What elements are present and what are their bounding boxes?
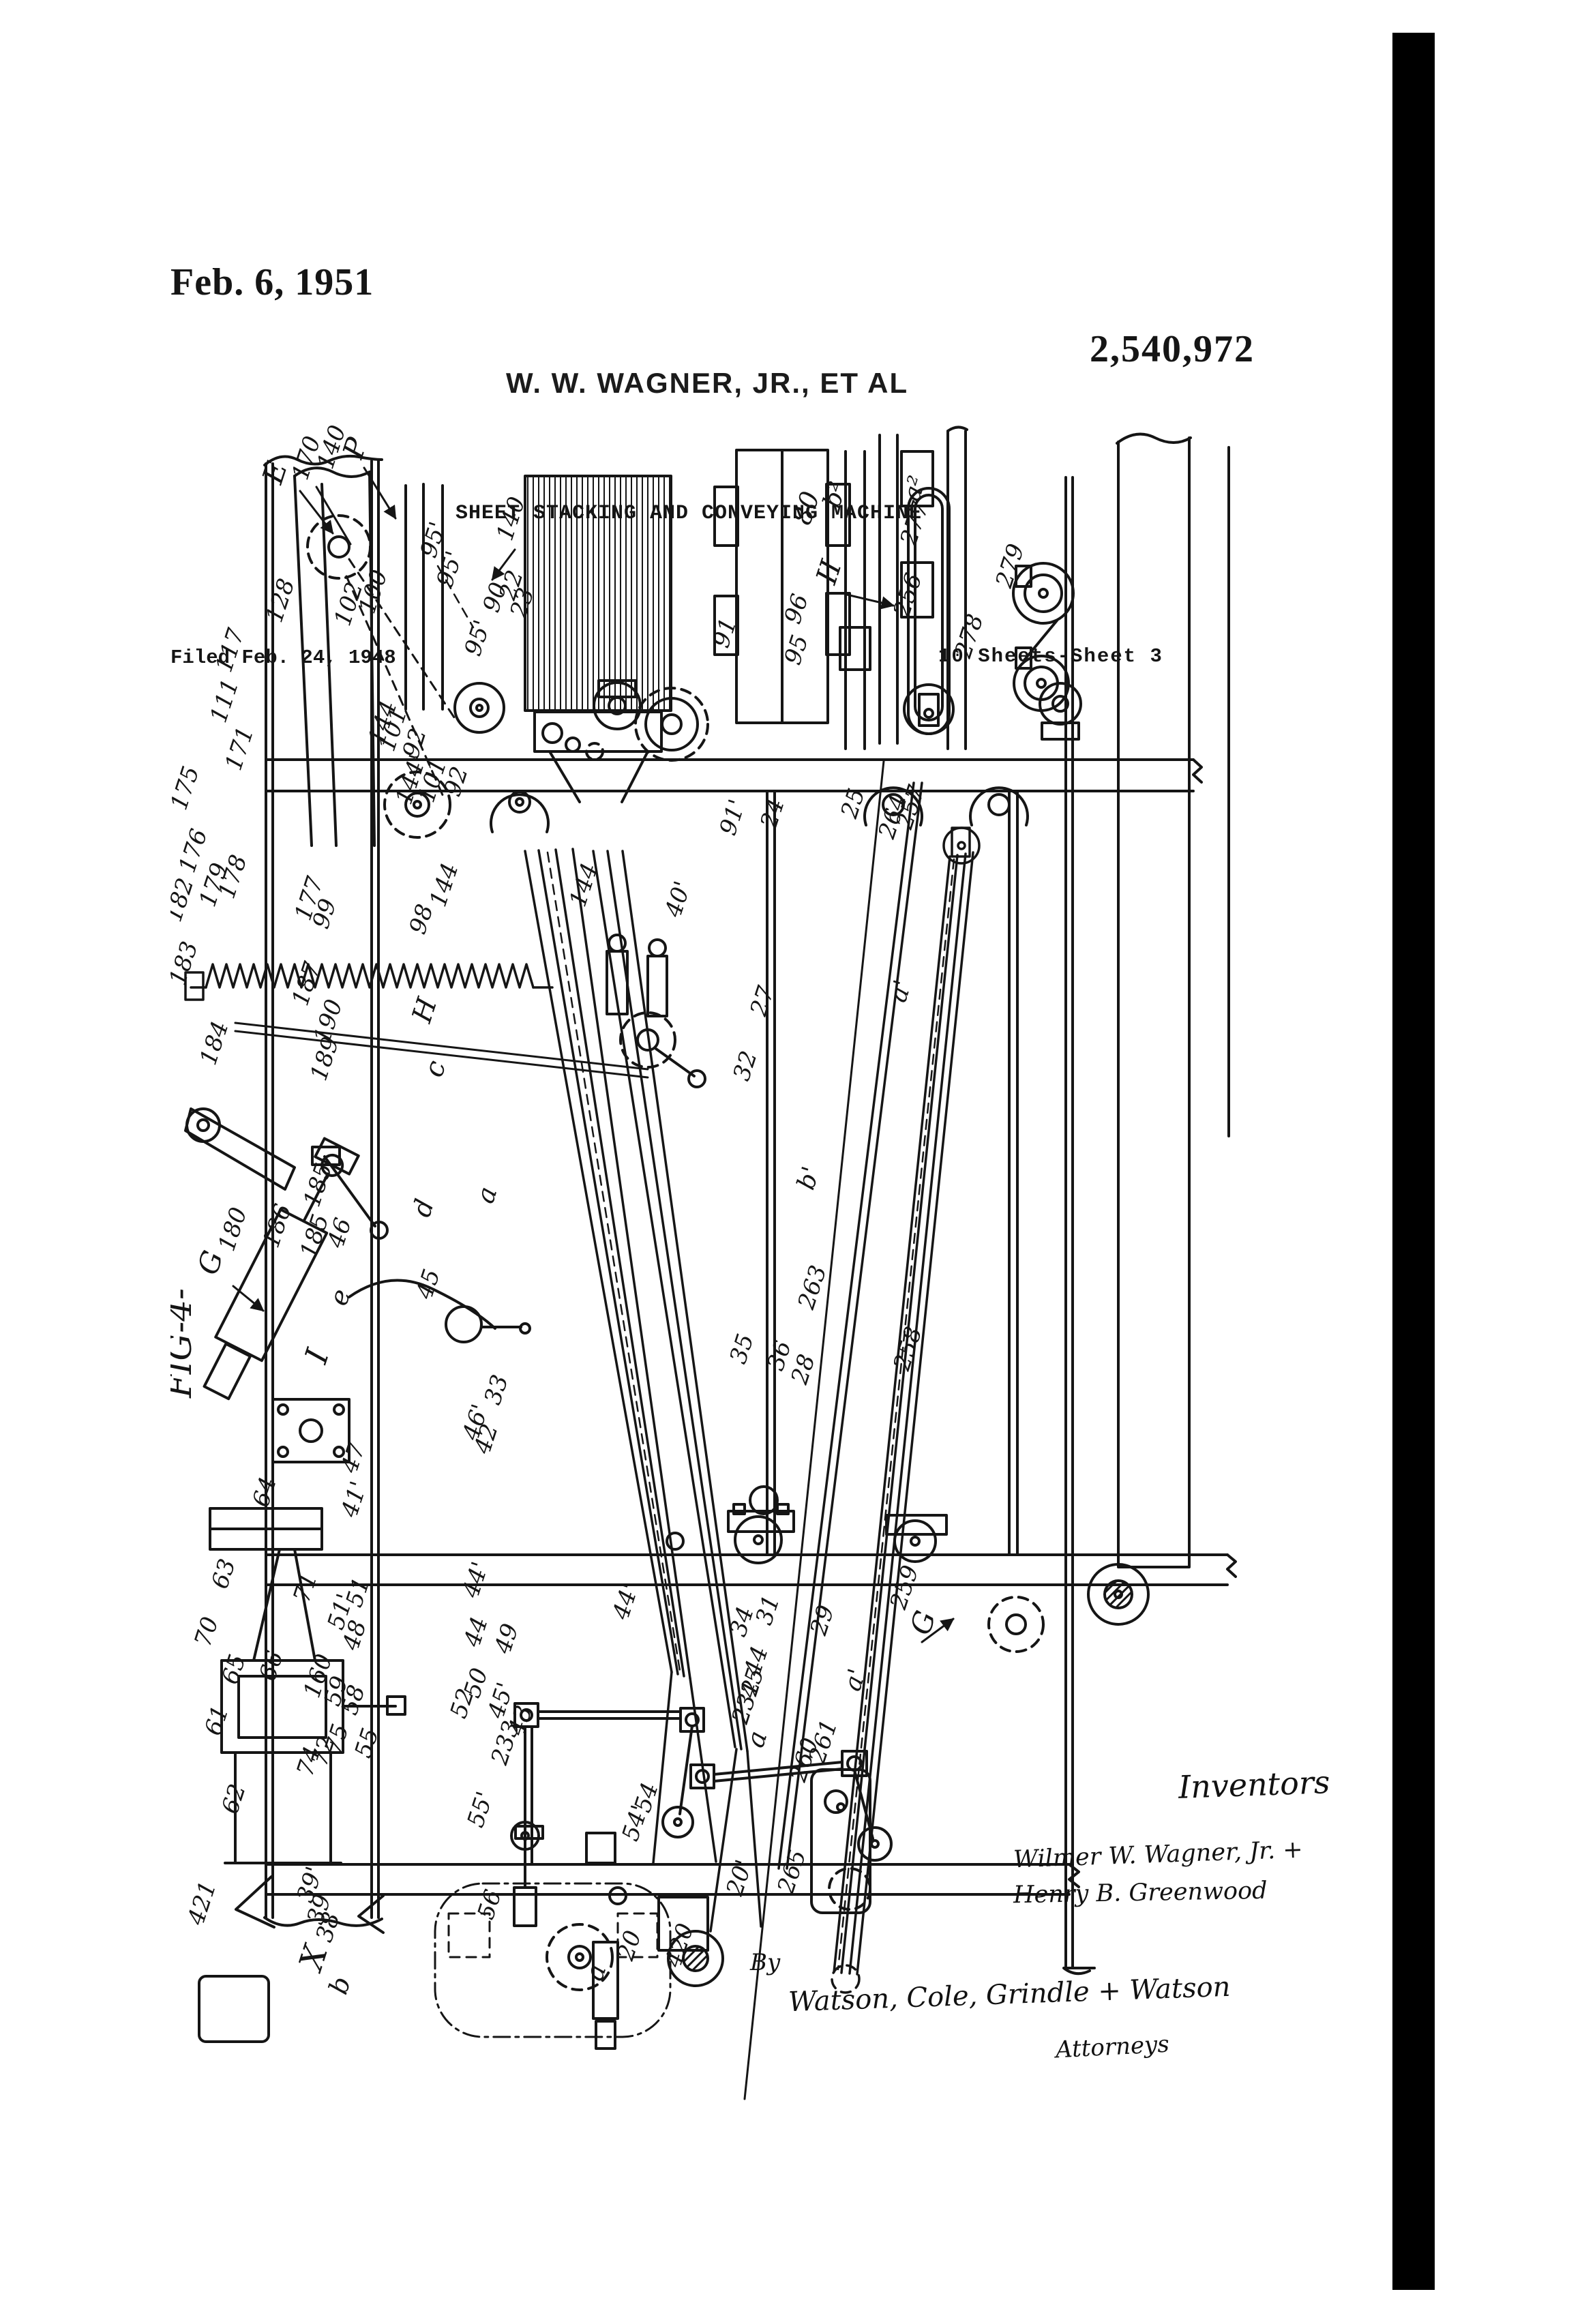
ref-label: X	[291, 1939, 336, 1977]
ref-label: 98	[404, 901, 439, 938]
ref-label: 278	[949, 611, 989, 662]
ref-label: 47	[335, 1440, 371, 1477]
inventors-heading: Inventors	[1178, 1763, 1330, 1806]
ref-label: 265	[772, 1847, 811, 1898]
ref-label: c	[418, 1057, 453, 1082]
ref-label: 256	[888, 570, 927, 621]
ref-label: 45	[411, 1266, 446, 1302]
ref-label: 66	[254, 1648, 289, 1684]
ref-label: G	[904, 1607, 942, 1639]
ref-label: d	[406, 1195, 440, 1221]
inventor-line: W. W. WAGNER, JR., ET AL	[506, 367, 908, 400]
ref-label: 233	[486, 1718, 525, 1769]
ref-label: 32	[728, 1047, 763, 1084]
ref-label: 80	[787, 488, 826, 528]
patent-number: 2,540,972	[1090, 327, 1255, 371]
ref-label: II	[809, 555, 849, 589]
ref-label: 183	[170, 938, 204, 989]
cam-cluster	[607, 935, 705, 1087]
ref-label: 111	[205, 676, 245, 726]
ref-label: 95'	[460, 616, 496, 659]
ref-label: 63	[207, 1555, 241, 1592]
ref-label: a	[470, 1183, 503, 1207]
ref-label: FIG-4-	[170, 1288, 199, 1399]
ref-label: 184	[195, 1018, 235, 1069]
ref-label: 421	[182, 1878, 222, 1929]
right-pulleys	[1013, 563, 1073, 711]
ref-label: 64	[248, 1474, 282, 1510]
ref-label: a²	[898, 473, 932, 505]
ref-label: 189	[305, 1034, 345, 1084]
ref-label: b	[323, 1973, 357, 1998]
ref-label: 175	[170, 763, 205, 814]
ref-label: H	[406, 994, 443, 1027]
conveyor-belts	[525, 761, 979, 2099]
ref-label: 279	[990, 541, 1030, 592]
ref-label: I	[297, 1344, 337, 1369]
ref-label: b'	[792, 1163, 826, 1193]
ref-label: 144	[565, 860, 604, 910]
ref-label: 185'	[299, 1154, 340, 1210]
patent-page: Feb. 6, 1951 W. W. WAGNER, JR., ET AL 2,…	[0, 0, 1582, 2324]
ref-label: e	[323, 1285, 357, 1309]
ref-label: a'	[884, 977, 918, 1005]
ref-label: 96	[779, 591, 814, 627]
ref-label: 144	[425, 860, 464, 910]
ref-label: 117	[211, 625, 250, 675]
ref-label: 62	[217, 1781, 252, 1817]
ref-label: 91'	[715, 796, 751, 838]
ref-label: 71	[288, 1569, 323, 1606]
by-label: By	[750, 1949, 780, 1976]
ref-label: 178	[213, 852, 253, 902]
ref-label: 257	[891, 781, 931, 833]
ref-label: a	[579, 1961, 612, 1984]
ref-label: 40'	[659, 878, 697, 921]
ref-label: 186	[258, 1201, 297, 1251]
ref-label: 41'	[335, 1478, 373, 1521]
inventor-signature-2: Henry B. Greenwood	[1013, 1877, 1268, 1909]
tension-spring	[185, 964, 648, 1077]
ref-label: 44	[458, 1613, 494, 1650]
ref-label: 56	[473, 1886, 507, 1923]
ref-label: 61	[200, 1702, 235, 1739]
ref-label: 95	[779, 631, 814, 668]
ref-label: 49	[489, 1620, 524, 1657]
scan-binding-bar	[1392, 33, 1435, 2290]
ref-label: a	[740, 1727, 773, 1751]
ref-label: 55'	[462, 1788, 499, 1830]
patent-date: Feb. 6, 1951	[170, 260, 374, 304]
bottom-cluster	[199, 1770, 870, 2049]
ref-label: 261	[803, 1716, 843, 1768]
ref-label: 44'	[607, 1580, 644, 1623]
ref-label: 180	[213, 1204, 253, 1255]
ref-label: 44'	[457, 1558, 494, 1601]
ref-label: 24	[755, 795, 790, 832]
ref-label: 33	[479, 1371, 514, 1408]
ref-label: 258	[888, 1324, 927, 1375]
ref-label: 171	[220, 724, 260, 774]
ref-label: G	[191, 1247, 230, 1279]
ref-label: 35	[725, 1330, 760, 1367]
ref-label: 70	[190, 1613, 224, 1650]
